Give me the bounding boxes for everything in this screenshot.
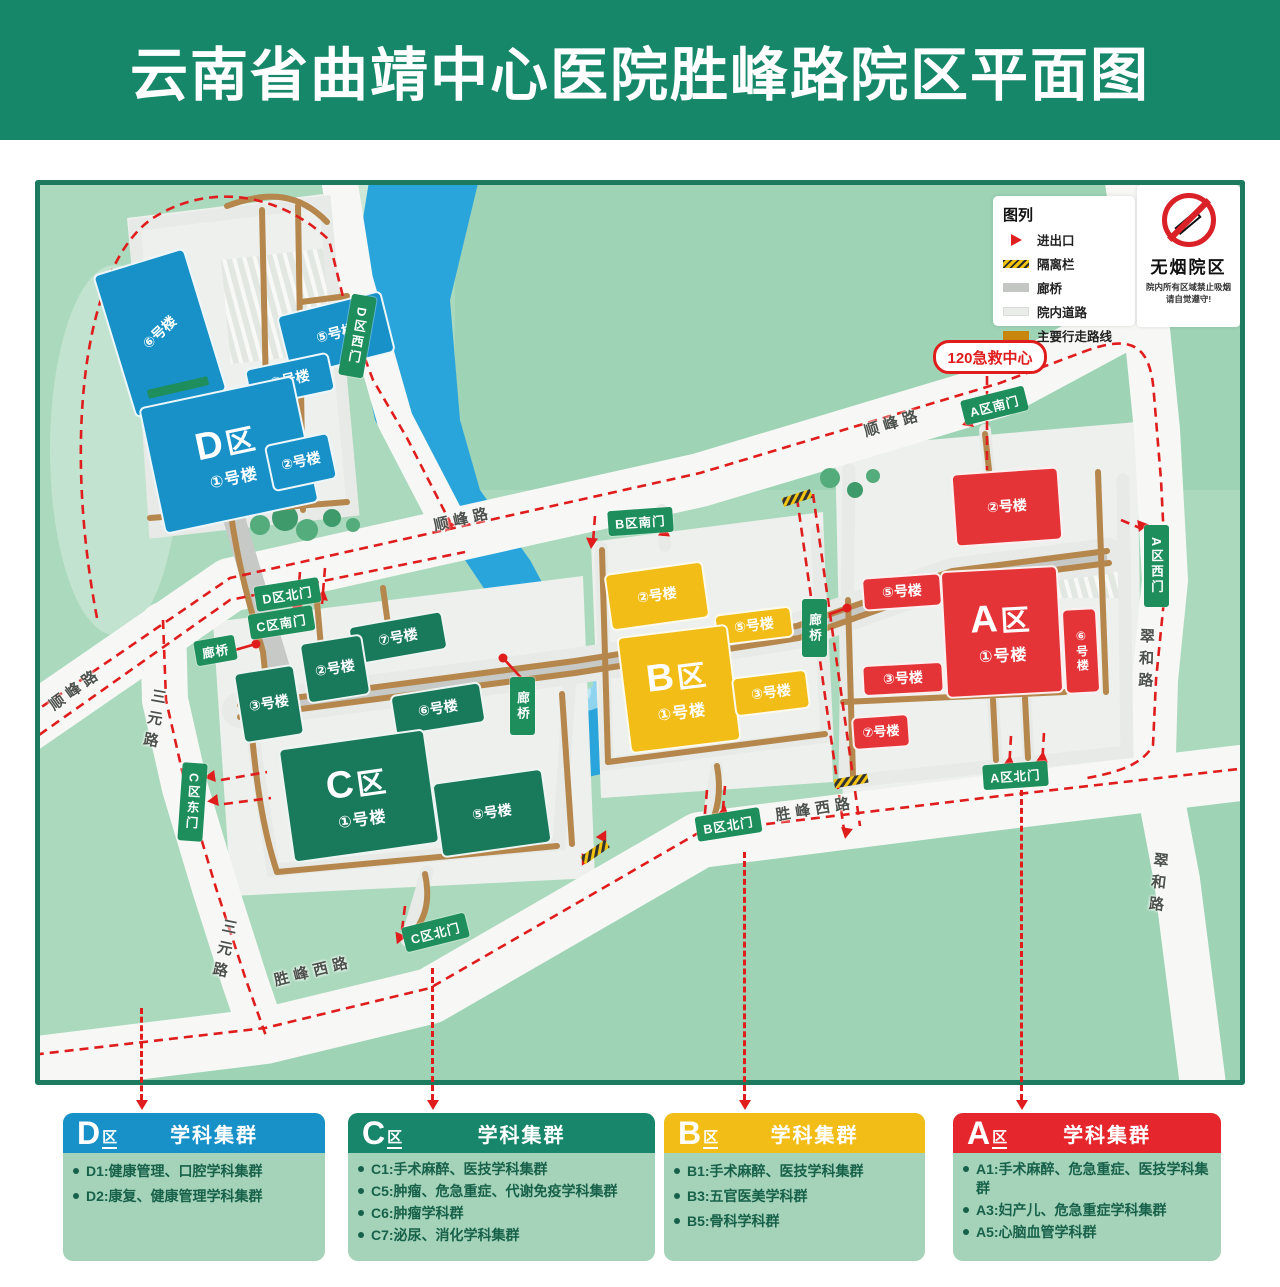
card-items-d: D1:健康管理、口腔学科集群 D2:康复、健康管理学科集群: [73, 1162, 317, 1206]
building-label: ⑦号楼: [377, 627, 419, 649]
corridor-bridge-icon: [1003, 283, 1029, 292]
bridge-sign: 廊桥: [802, 599, 827, 657]
card-items-c: C1:手术麻醉、医技学科集群 C5:肿瘤、危急重症、代谢免疫学科集群 C6:肿瘤…: [358, 1160, 647, 1245]
map-legend: 图列 进出口 隔离栏 廊桥 院内道路 主要行走路线: [993, 196, 1135, 326]
building-a7: ⑦号楼: [851, 713, 911, 751]
legend-title: 图列: [1003, 204, 1125, 225]
gate-a-north: A区北门: [982, 761, 1048, 790]
building-label: ②号楼: [280, 450, 322, 473]
building-label: ③号楼: [883, 670, 924, 687]
building-label: ①号楼: [337, 808, 388, 832]
building-label: ⑤号楼: [882, 583, 923, 601]
building-label: ②号楼: [987, 498, 1028, 516]
list-item: D1:健康管理、口腔学科集群: [73, 1162, 317, 1181]
card-connector-d: [140, 1008, 143, 1100]
card-zone-b: B 区 学科集群 B1:手术麻醉、医技学科集群 B3:五官医美学科群 B5:骨科…: [664, 1113, 925, 1261]
zone-label-c: C区: [323, 759, 391, 809]
list-item: B3:五官医美学科群: [674, 1187, 917, 1206]
entrance-arrow-icon: [1003, 234, 1029, 246]
list-item: D2:康复、健康管理学科集群: [73, 1187, 317, 1206]
gate-b-south: B区南门: [607, 507, 673, 536]
building-label: ①号楼: [208, 465, 259, 492]
legend-item-corridor: 廊桥: [1003, 278, 1125, 297]
building-label: ⑥号楼: [417, 698, 459, 719]
building-label: ⑤号楼: [733, 616, 774, 636]
building-a5: ⑤号楼: [861, 572, 943, 611]
campus-road-icon: [1003, 307, 1029, 316]
legend-item-fence: 隔离栏: [1003, 254, 1125, 273]
building-label: ③号楼: [750, 683, 791, 703]
card-zone-c: C 区 学科集群 C1:手术麻醉、医技学科集群 C5:肿瘤、危急重症、代谢免疫学…: [348, 1113, 655, 1261]
page: 云南省曲靖中心医院胜峰路院区平面图: [0, 0, 1280, 1287]
no-smoking-notice: 无烟院区 院内所有区域禁止吸烟 请自觉遵守!: [1137, 185, 1240, 327]
zone-label-d: D区: [192, 416, 262, 470]
legend-item-entrance: 进出口: [1003, 230, 1125, 249]
card-items-a: A1:手术麻醉、危急重症、医技学科集群 A3:妇产儿、危急重症学科集群 A5:心…: [963, 1160, 1213, 1242]
building-label: ②号楼: [636, 586, 678, 607]
page-title: 云南省曲靖中心医院胜峰路院区平面图: [130, 28, 1150, 112]
building-a6: ⑥号楼: [1061, 607, 1101, 695]
list-item: C1:手术麻醉、医技学科集群: [358, 1160, 647, 1179]
list-item: B5:骨科学科群: [674, 1212, 917, 1231]
building-c1: C区 ①号楼: [278, 728, 441, 863]
list-item: C5:肿瘤、危急重症、代谢免疫学科集群: [358, 1182, 647, 1201]
no-smoking-title: 无烟院区: [1151, 253, 1227, 278]
building-label: ②号楼: [314, 658, 356, 679]
card-connector-a: [1020, 790, 1023, 1100]
list-item: A3:妇产儿、危急重症学科集群: [963, 1201, 1213, 1220]
building-label: ①号楼: [657, 702, 707, 725]
building-label: ⑥号楼: [1073, 629, 1088, 674]
building-label: ⑥号楼: [140, 314, 180, 352]
card-header-b: B 区 学科集群: [664, 1113, 925, 1153]
zone-label-a: A区: [969, 597, 1034, 642]
building-a1: A区 ①号楼: [940, 565, 1065, 699]
card-header-d: D 区 学科集群: [63, 1113, 325, 1153]
building-label: ①号楼: [979, 646, 1028, 666]
building-c2: ②号楼: [299, 633, 372, 704]
bridge-sign: 廊桥: [510, 677, 535, 735]
card-connector-b: [743, 852, 746, 1100]
card-connector-c: [431, 968, 434, 1100]
building-c3: ③号楼: [233, 664, 305, 745]
walking-route-icon: [1003, 331, 1029, 340]
title-banner: 云南省曲靖中心医院胜峰路院区平面图: [0, 0, 1280, 140]
card-header-a: A 区 学科集群: [953, 1113, 1221, 1153]
list-item: A1:手术麻醉、危急重症、医技学科集群: [963, 1160, 1213, 1198]
emergency-center-label: 120急救中心: [933, 340, 1047, 374]
campus-map: ⑥号楼 ⑤号楼 ③号楼 D区 ①号楼 ②号楼 ⑦号楼 ②号楼 ③号楼 ⑥号楼 C…: [35, 180, 1245, 1085]
building-c5: ⑤号楼: [431, 768, 552, 859]
legend-item-route: 主要行走路线: [1003, 326, 1125, 345]
no-smoking-line1: 院内所有区域禁止吸烟: [1146, 281, 1231, 293]
card-zone-a: A 区 学科集群 A1:手术麻醉、危急重症、医技学科集群 A3:妇产儿、危急重症…: [953, 1113, 1221, 1261]
no-smoking-icon: [1162, 193, 1216, 247]
building-b1: B区 ①号楼: [616, 624, 742, 755]
road-label-cuihe: 翠和路: [1134, 628, 1157, 695]
legend-item-road: 院内道路: [1003, 302, 1125, 321]
building-label: ⑦号楼: [862, 724, 900, 741]
card-header-c: C 区 学科集群: [348, 1113, 655, 1153]
isolation-fence-icon: [1003, 260, 1029, 268]
building-a2: ②号楼: [951, 466, 1064, 547]
building-label: ③号楼: [248, 693, 290, 714]
building-a3: ③号楼: [861, 661, 945, 697]
building-label: ⑤号楼: [471, 803, 513, 824]
list-item: C6:肿瘤学科群: [358, 1204, 647, 1223]
card-items-b: B1:手术麻醉、医技学科集群 B3:五官医美学科群 B5:骨科学科群: [674, 1162, 917, 1231]
zone-label-b: B区: [644, 652, 711, 701]
card-zone-d: D 区 学科集群 D1:健康管理、口腔学科集群 D2:康复、健康管理学科集群: [63, 1113, 325, 1261]
list-item: A5:心脑血管学科群: [963, 1223, 1213, 1242]
list-item: C7:泌尿、消化学科集群: [358, 1226, 647, 1245]
no-smoking-line2: 请自觉遵守!: [1166, 293, 1211, 305]
gate-a-west: A区西门: [1144, 525, 1169, 607]
list-item: B1:手术麻醉、医技学科集群: [674, 1162, 917, 1181]
